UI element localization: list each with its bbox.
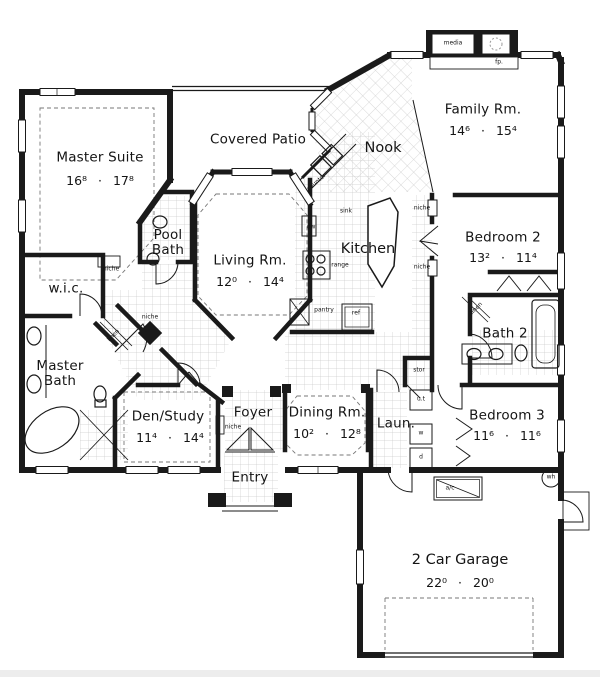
ac-unit-label: a/c: [446, 486, 455, 493]
master-bath-label: Master Bath: [29, 359, 91, 389]
garage-label: 2 Car Garage: [412, 552, 509, 568]
dining-rm-dims: 10² · 12⁸: [293, 427, 361, 441]
nook-label: Nook: [365, 140, 402, 156]
covered-patio-label: Covered Patio: [210, 132, 306, 147]
entry-label: Entry: [232, 470, 269, 485]
utility-tub-label: u.t: [417, 397, 425, 404]
bedroom3-dims: 11⁶ · 11⁶: [473, 429, 541, 443]
garage-door: [385, 650, 533, 660]
bedroom3-label: Bedroom 3: [469, 408, 545, 423]
pool-bath-label: Pool Bath: [145, 228, 191, 258]
laundry-label: Laun.: [377, 416, 415, 431]
floor-plan: Master Suite 16⁸ · 17⁸ Covered Patio Noo…: [0, 0, 600, 677]
water-heater-label: wh: [547, 475, 556, 482]
fireplace-media-wall: [426, 30, 518, 69]
media-niche-label: media: [444, 41, 463, 48]
bedroom2-dims: 13² · 11⁴: [469, 251, 537, 265]
family-rm-dims: 14⁶ · 15⁴: [449, 124, 517, 138]
family-rm-label: Family Rm.: [445, 102, 522, 117]
master-suite-dims: 16⁸ · 17⁸: [66, 174, 134, 188]
master-suite-label: Master Suite: [56, 150, 143, 165]
niche-label-bedroom2-upper: niche: [414, 206, 430, 213]
fridge-label: ref: [352, 311, 360, 318]
den-study-dims: 11⁴ · 14⁴: [136, 431, 204, 445]
kitchen-label: Kitchen: [341, 241, 396, 257]
wic-label: w.i.c.: [48, 281, 83, 296]
bath2-label: Bath 2: [482, 326, 527, 341]
storage-label: stor: [413, 368, 425, 375]
den-study-label: Den/Study: [132, 409, 205, 424]
living-rm-dims: 12⁰ · 14⁴: [216, 275, 284, 289]
living-rm-label: Living Rm.: [213, 253, 286, 268]
range-label: range: [331, 263, 348, 270]
image-bottom-edge: [0, 670, 600, 677]
fireplace-label: fp.: [495, 60, 503, 67]
washer-label: w: [419, 431, 424, 438]
sink-label: sink: [340, 209, 352, 216]
bedroom2-label: Bedroom 2: [465, 230, 541, 245]
dishwasher-label: dw: [307, 225, 316, 232]
niche-label-foyer: niche: [225, 425, 241, 432]
foyer-label: Foyer: [234, 405, 272, 420]
dining-rm-label: Dining Rm.: [289, 405, 366, 420]
niche-label-wic: niche: [103, 267, 119, 274]
niche-label-bedroom2-lower: niche: [414, 265, 430, 272]
garage-dims: 22⁰ · 20⁰: [426, 576, 494, 590]
pantry-label: pantry: [314, 308, 334, 315]
dryer-label: d: [419, 455, 423, 462]
niche-label-gallery: niche: [142, 315, 158, 322]
